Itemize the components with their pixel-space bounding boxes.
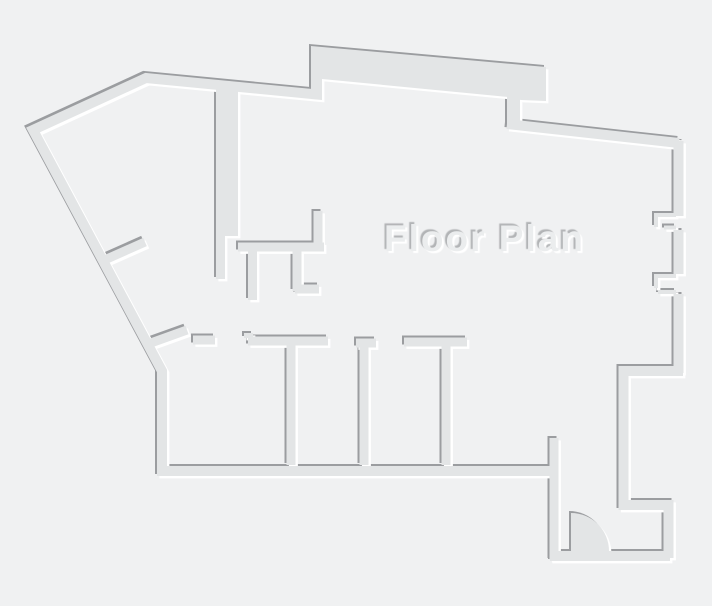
walls-highlight-layer — [35, 48, 685, 562]
floor-plan-title: Floor Plan — [384, 220, 585, 257]
floor-plan-canvas — [0, 0, 712, 606]
floor-plan-stage: Floor Plan — [0, 0, 712, 606]
walls-fill-layer — [33, 46, 683, 560]
